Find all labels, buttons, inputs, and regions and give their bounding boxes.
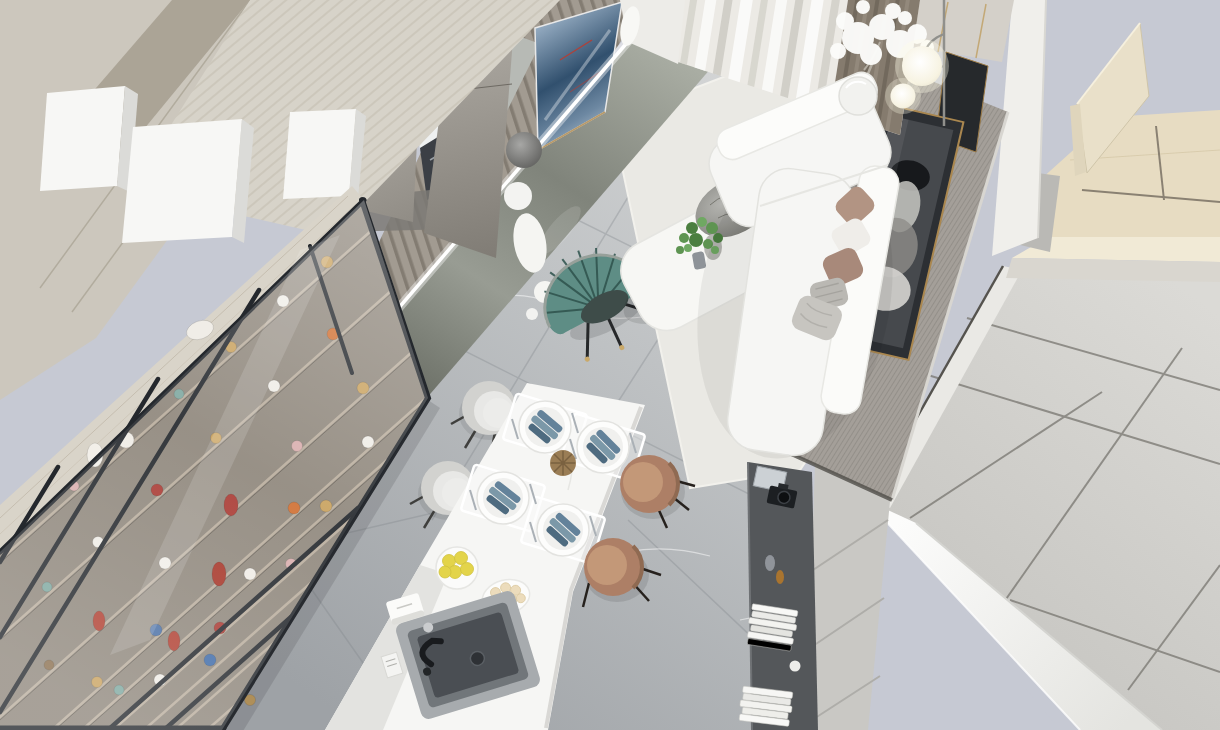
console-figurine-2 [776, 570, 784, 584]
book-stack-2 [738, 686, 794, 727]
centerpiece [550, 450, 576, 476]
lamp-globe-small [891, 84, 916, 109]
render-canvas [0, 0, 1220, 730]
console-figurine [765, 555, 775, 571]
console-shelf [738, 462, 818, 730]
small-pot [790, 661, 801, 672]
lemon-bowl [436, 547, 478, 589]
interior-render [0, 0, 1220, 730]
bear-sphere-head [506, 132, 542, 168]
pale-strip [1006, 258, 1220, 282]
